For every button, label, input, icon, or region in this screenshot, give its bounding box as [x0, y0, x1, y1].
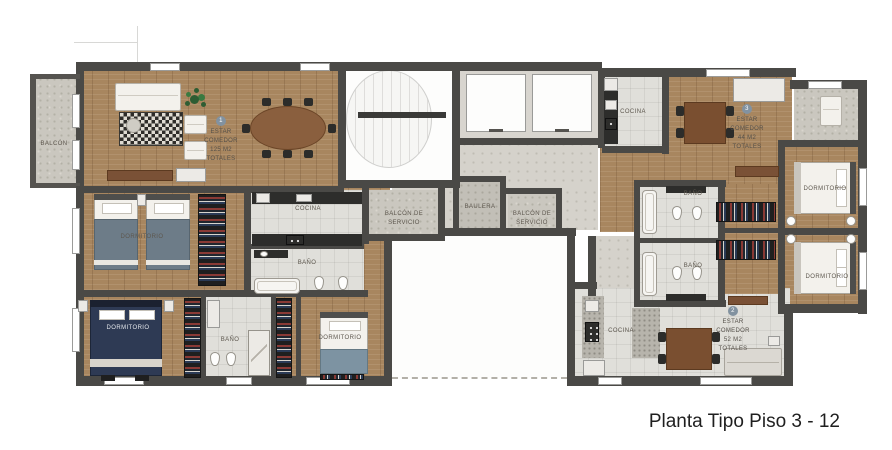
wall: [600, 68, 796, 77]
sink: [260, 251, 268, 257]
fridge: [256, 193, 270, 203]
wall: [384, 238, 392, 384]
sofa: [115, 83, 181, 111]
wall: [790, 304, 867, 313]
wardrobe: [716, 202, 776, 222]
wall: [504, 188, 562, 194]
chair: [658, 354, 666, 364]
nightstand-lamp: [786, 216, 796, 226]
room-label-kitchen: COCINA: [591, 327, 651, 336]
window: [808, 81, 842, 89]
window: [72, 94, 80, 128]
room-label-bedroom: DORMITORIO: [300, 334, 380, 343]
unit-label-line: COMEDOR: [708, 327, 758, 336]
wall: [76, 290, 368, 297]
console: [735, 166, 779, 177]
fridge: [604, 78, 618, 91]
chair: [658, 332, 666, 342]
room-label-service-balcony: BALCÓN DE SERVICIO: [378, 210, 430, 228]
room-label-bedroom: DORMITORIO: [88, 324, 168, 333]
kitchen-counter: [252, 234, 362, 246]
lounge-chair: [820, 96, 842, 126]
chair: [262, 98, 271, 106]
wall: [452, 62, 460, 188]
plan-caption: Planta Tipo Piso 3 - 12: [540, 411, 840, 433]
wall: [453, 176, 506, 182]
unit-label-line: TOTALES: [722, 143, 772, 152]
wall: [778, 140, 866, 147]
unit-label-line: 52 M2: [708, 336, 758, 345]
unit-label-line: 44 M2: [722, 134, 772, 143]
window: [226, 377, 252, 385]
bed-bench: [320, 374, 364, 380]
single-bed: [320, 312, 368, 374]
wall: [634, 238, 724, 243]
room-label-baulera: BAULERA: [452, 203, 508, 212]
floor-plan: BALCÓN 1 ESTAR COMEDOR 125 M2 TOTALES DO…: [0, 0, 892, 450]
unit-2-label: 2 ESTAR COMEDOR 52 M2 TOTALES: [708, 306, 758, 354]
chair: [262, 150, 271, 158]
dining-table: [684, 102, 726, 144]
room-label-service-balcony: BALCÓN DE SERVICIO: [506, 210, 558, 228]
wall: [460, 138, 602, 145]
nightstand-lamp: [786, 234, 796, 244]
nightstand: [137, 194, 146, 206]
fridge: [583, 360, 605, 376]
wall: [567, 236, 575, 384]
window: [72, 308, 80, 352]
bathtub: [254, 278, 300, 294]
chair: [304, 150, 313, 158]
vanity: [207, 300, 220, 328]
room-label-bathroom: BAÑO: [282, 259, 332, 268]
wardrobe: [276, 298, 292, 378]
wall: [338, 62, 346, 188]
elevator: [532, 74, 592, 132]
wall: [784, 304, 793, 386]
console: [728, 296, 768, 305]
unit-label-line: TOTALES: [708, 345, 758, 354]
double-bed: [90, 300, 162, 376]
chair: [283, 150, 292, 158]
plant: [190, 95, 199, 104]
bathtub: [642, 190, 657, 234]
wall: [662, 68, 669, 154]
unit-label-line: TOTALES: [196, 155, 246, 164]
unit-label-line: 125 M2: [196, 146, 246, 155]
room-balcony: [30, 76, 78, 186]
stair-handrail: [358, 112, 446, 118]
balcony-wall: [30, 74, 36, 188]
room-label-balcony: BALCÓN: [32, 140, 76, 149]
window: [300, 63, 330, 71]
room-label-bathroom: BAÑO: [668, 262, 718, 271]
coffee-table: [126, 118, 141, 133]
chair: [676, 106, 684, 116]
elevator: [466, 74, 526, 132]
window: [700, 377, 752, 385]
chair: [712, 354, 720, 364]
twin-bed: [146, 194, 190, 270]
dining-table: [666, 328, 712, 370]
wall: [571, 282, 597, 289]
room-label-bedroom: DORMITORIO: [787, 273, 867, 282]
chair: [676, 128, 684, 138]
window: [598, 377, 622, 385]
balcony-wall: [30, 183, 80, 188]
twin-bed: [94, 194, 138, 270]
chair: [304, 98, 313, 106]
staircase: [346, 70, 432, 168]
unit-3-label: 3 ESTAR COMEDOR 44 M2 TOTALES: [722, 104, 772, 152]
stove: [286, 235, 304, 245]
chair: [283, 98, 292, 106]
nightstand-lamp: [846, 216, 856, 226]
double-bed: [794, 242, 856, 294]
unit-label-line: ESTAR: [196, 128, 246, 137]
wardrobe: [716, 240, 776, 260]
room-label-kitchen: COCINA: [603, 108, 663, 117]
room-label-bathroom: BAÑO: [205, 336, 255, 345]
wall: [634, 180, 640, 306]
unit-label-line: ESTAR: [722, 116, 772, 125]
sideboard: [107, 170, 173, 181]
unit-3-number-badge: 3: [742, 104, 752, 114]
unit-label-line: ESTAR: [708, 318, 758, 327]
guide-line: [74, 42, 137, 43]
wardrobe: [198, 194, 226, 286]
wall: [438, 186, 445, 238]
unit-1-number-badge: 1: [216, 116, 226, 126]
nightstand: [78, 300, 88, 312]
wall: [244, 188, 251, 296]
window: [859, 252, 867, 290]
room-label-bathroom: BAÑO: [668, 190, 718, 199]
bathtub: [642, 252, 657, 296]
unit-2-number-badge: 2: [728, 306, 738, 316]
room-label-bedroom: DORMITORIO: [102, 233, 182, 242]
room-label-bedroom: DORMITORIO: [785, 185, 865, 194]
kitchen-sink: [296, 194, 312, 202]
chair: [328, 124, 336, 133]
room-wardrobe-corridor: [720, 184, 780, 294]
nightstand-lamp: [846, 234, 856, 244]
window: [706, 69, 750, 77]
wall: [724, 228, 778, 233]
wall: [368, 234, 445, 241]
balcony-wall: [30, 74, 80, 79]
window: [72, 208, 80, 254]
courtyard: [392, 236, 567, 378]
wall: [602, 146, 668, 153]
kitchen-sink: [585, 300, 599, 312]
tv-console: [176, 168, 206, 182]
side-table: [768, 336, 780, 346]
wardrobe: [184, 298, 201, 378]
room-label-kitchen: COCINA: [278, 205, 338, 214]
sideboard: [733, 78, 785, 102]
unit-label-line: COMEDOR: [196, 137, 246, 146]
dining-table: [250, 106, 326, 150]
unit-1-label: 1 ESTAR COMEDOR 125 M2 TOTALES: [196, 116, 246, 164]
nightstand: [164, 300, 174, 312]
property-dashed-line: [392, 377, 567, 379]
window: [150, 63, 180, 71]
vanity: [666, 294, 706, 301]
unit-label-line: COMEDOR: [722, 125, 772, 134]
stove: [605, 118, 617, 130]
